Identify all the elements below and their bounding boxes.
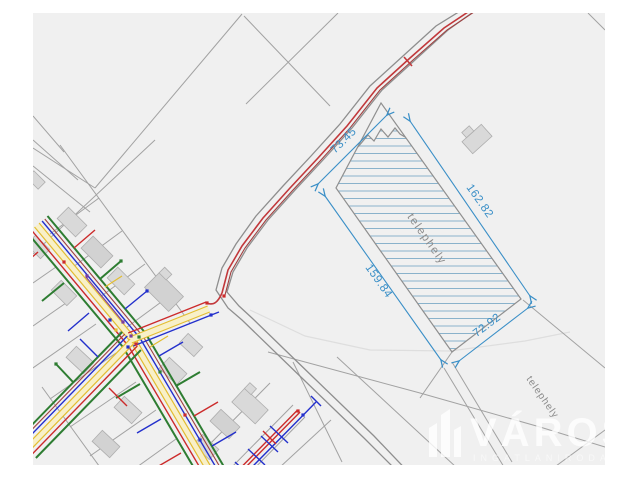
map-svg[interactable]: 73.45 162.82 159.84 72.92 telephely tele… — [0, 0, 640, 480]
watermark-subtitle: INGATLANIRODA — [473, 453, 611, 463]
map-viewport[interactable]: 73.45 162.82 159.84 72.92 telephely tele… — [0, 0, 640, 480]
